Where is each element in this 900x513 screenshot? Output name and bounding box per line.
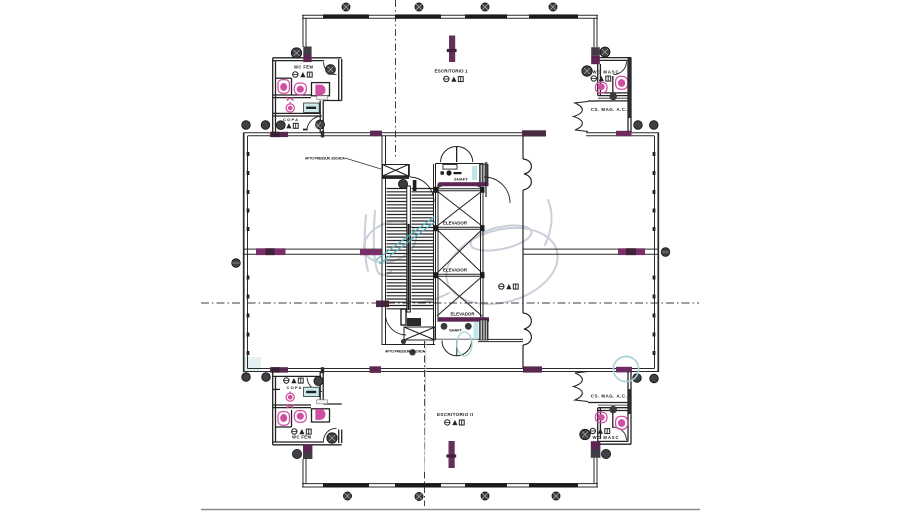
svg-text:WC FEM: WC FEM	[292, 434, 312, 439]
svg-text:ESCRITORIO 1: ESCRITORIO 1	[435, 69, 468, 74]
svg-text:WC FEM: WC FEM	[294, 65, 314, 70]
svg-text:ESCRITORIO II: ESCRITORIO II	[437, 412, 473, 417]
svg-text:ELEVADOR: ELEVADOR	[443, 267, 468, 272]
svg-text:SHAFT: SHAFT	[454, 176, 469, 181]
svg-text:COPA: COPA	[287, 385, 302, 390]
svg-text:WC MASC: WC MASC	[593, 435, 619, 440]
svg-text:WC MASC: WC MASC	[593, 69, 619, 74]
svg-text:CS. MAG. A.C.: CS. MAG. A.C.	[591, 107, 627, 112]
svg-text:APTO PRESSUR. ESCADA: APTO PRESSUR. ESCADA	[385, 350, 426, 354]
svg-text:CS. MAG. A.C.: CS. MAG. A.C.	[591, 394, 627, 399]
svg-text:APTO PRESSUR. ESCADA: APTO PRESSUR. ESCADA	[305, 157, 346, 161]
svg-text:SHAFT: SHAFT	[449, 328, 463, 333]
svg-text:ELEVADOR: ELEVADOR	[451, 312, 476, 317]
svg-text:COPA: COPA	[283, 117, 298, 122]
svg-text:ELEVADOR: ELEVADOR	[443, 220, 468, 225]
